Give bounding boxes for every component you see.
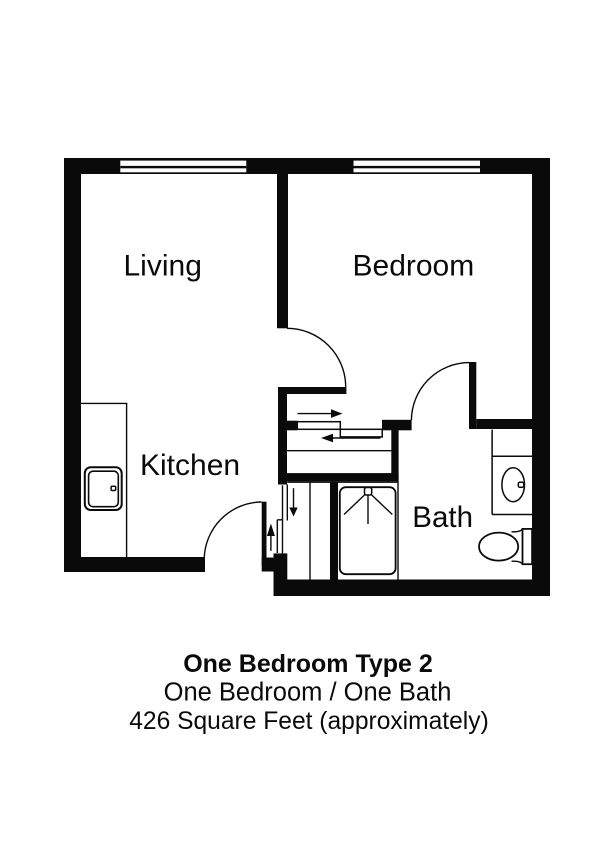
svg-text:One Bedroom / One Bath: One Bedroom / One Bath [164,678,452,706]
svg-text:Bedroom: Bedroom [353,250,475,283]
svg-text:426 Square Feet (approximately: 426 Square Feet (approximately) [129,708,489,735]
svg-text:Living: Living [124,250,202,283]
svg-text:Bath: Bath [412,501,473,534]
svg-text:Kitchen: Kitchen [140,449,240,482]
svg-text:One Bedroom Type 2: One Bedroom Type 2 [183,650,433,678]
